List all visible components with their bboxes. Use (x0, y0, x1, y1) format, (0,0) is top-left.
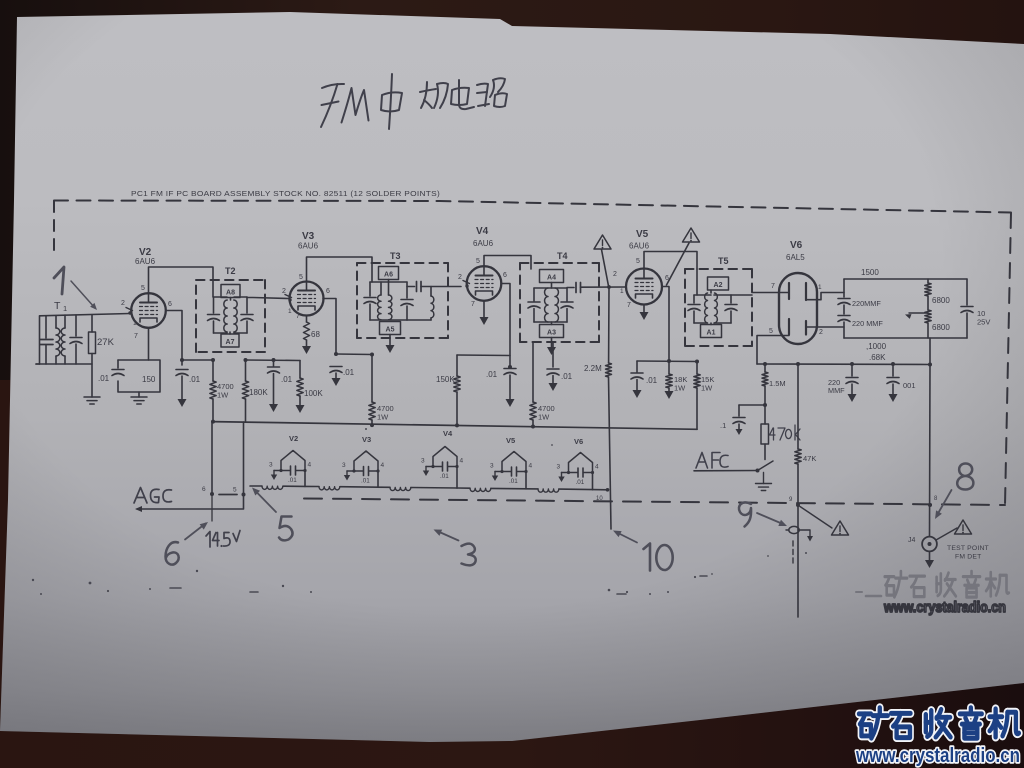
svg-text:150: 150 (142, 375, 156, 384)
svg-text:A5: A5 (386, 326, 395, 333)
svg-text:.68K: .68K (869, 353, 886, 362)
svg-text:V6: V6 (790, 240, 803, 251)
svg-text:220 MMF: 220 MMF (852, 319, 883, 328)
svg-text:1W: 1W (674, 384, 686, 393)
svg-text:V6: V6 (574, 437, 583, 446)
svg-text:V3: V3 (362, 435, 371, 444)
svg-text:TEST POINT: TEST POINT (947, 545, 989, 552)
svg-text:1: 1 (818, 284, 822, 291)
svg-text:1W: 1W (377, 413, 389, 422)
svg-text:1W: 1W (701, 384, 713, 393)
svg-text:3: 3 (342, 462, 346, 469)
svg-text:3: 3 (421, 458, 425, 465)
svg-text:6AU6: 6AU6 (629, 242, 650, 251)
svg-text:4: 4 (308, 462, 312, 469)
svg-text:2: 2 (121, 300, 125, 307)
svg-text:3: 3 (557, 464, 561, 471)
svg-text:.01: .01 (288, 477, 297, 484)
svg-text:www.crystalradio.cn: www.crystalradio.cn (883, 600, 1006, 616)
svg-text:6: 6 (326, 288, 330, 295)
svg-text:5: 5 (636, 258, 640, 265)
svg-text:180K: 180K (249, 388, 268, 397)
svg-text:PC1 FM IF PC BOARD ASSEMBLY: PC1 FM IF PC BOARD ASSEMBLY STOCK NO. 82… (131, 189, 440, 198)
svg-text:V5: V5 (636, 229, 649, 240)
svg-text:4: 4 (381, 462, 385, 469)
svg-text:V2: V2 (289, 434, 298, 443)
svg-text:100K: 100K (304, 389, 323, 398)
svg-text:.01: .01 (576, 479, 585, 486)
svg-text:5: 5 (233, 487, 237, 494)
svg-text:www.crystalradio.cn: www.crystalradio.cn (855, 745, 1020, 767)
svg-text:T3: T3 (390, 251, 401, 261)
svg-text:2: 2 (613, 271, 617, 278)
svg-text:5: 5 (299, 274, 303, 281)
svg-text:J4: J4 (908, 537, 916, 544)
svg-text:6800: 6800 (932, 296, 950, 305)
svg-text:7: 7 (296, 313, 300, 320)
svg-text:7: 7 (471, 301, 475, 308)
svg-text:1: 1 (288, 308, 292, 315)
svg-text:A4: A4 (547, 274, 556, 281)
svg-text:T2: T2 (225, 266, 236, 276)
svg-text:.01: .01 (281, 375, 293, 384)
svg-text:2.2M: 2.2M (584, 364, 602, 373)
svg-text:A3: A3 (547, 329, 556, 336)
svg-text:A1: A1 (707, 329, 716, 336)
svg-text:3: 3 (269, 462, 273, 469)
svg-text:27K: 27K (97, 337, 115, 348)
svg-text:1: 1 (620, 288, 624, 295)
svg-text:T: T (54, 300, 61, 312)
svg-text:5: 5 (141, 285, 145, 292)
svg-text:V4: V4 (443, 429, 453, 438)
svg-text:1: 1 (63, 304, 67, 313)
svg-text:,1000: ,1000 (866, 342, 887, 351)
svg-text:.01: .01 (361, 478, 370, 485)
svg-text:.01: .01 (486, 370, 498, 379)
svg-text:7: 7 (134, 333, 138, 340)
svg-text:47K: 47K (803, 454, 816, 463)
svg-text:T4: T4 (557, 251, 568, 261)
svg-text:.01: .01 (440, 473, 449, 480)
svg-text:6AU6: 6AU6 (135, 257, 156, 266)
svg-text:1500: 1500 (861, 268, 879, 277)
svg-text:25V: 25V (977, 318, 990, 327)
svg-text:A7: A7 (226, 339, 235, 346)
svg-text:6: 6 (168, 301, 172, 308)
svg-text:.01: .01 (343, 368, 355, 377)
svg-text:V4: V4 (476, 226, 489, 237)
svg-text:6AL5: 6AL5 (786, 253, 805, 262)
svg-text:7: 7 (627, 302, 631, 309)
svg-text:220MMF: 220MMF (852, 299, 881, 308)
svg-text:3: 3 (490, 463, 494, 470)
svg-text:7: 7 (771, 283, 775, 290)
svg-text:.01: .01 (509, 478, 518, 485)
svg-text:150K: 150K (436, 375, 455, 384)
svg-text:.01: .01 (646, 376, 658, 385)
svg-text:.1: .1 (720, 421, 726, 430)
svg-text:1W: 1W (217, 391, 229, 400)
svg-text:5: 5 (476, 258, 480, 265)
svg-text:6: 6 (665, 275, 669, 282)
svg-text:T5: T5 (718, 256, 729, 266)
svg-text:1: 1 (133, 320, 137, 327)
svg-text:FM DET: FM DET (955, 554, 982, 561)
svg-text:6800: 6800 (932, 323, 950, 332)
svg-text:1.5M: 1.5M (769, 379, 786, 388)
svg-text:.01: .01 (561, 372, 573, 381)
svg-text:4: 4 (460, 458, 464, 465)
svg-text:6AU6: 6AU6 (473, 239, 494, 248)
svg-text:4: 4 (595, 464, 599, 471)
svg-text:V5: V5 (506, 436, 515, 445)
svg-text:A8: A8 (226, 289, 235, 296)
svg-text:001: 001 (903, 381, 916, 390)
svg-text:68: 68 (311, 330, 320, 339)
svg-text:6AU6: 6AU6 (298, 242, 319, 251)
svg-text:2: 2 (819, 329, 823, 336)
svg-text:5: 5 (769, 328, 773, 335)
svg-text:6: 6 (503, 272, 507, 279)
svg-text:2: 2 (458, 274, 462, 281)
svg-text:A2: A2 (714, 282, 723, 289)
svg-text:6: 6 (202, 486, 206, 493)
svg-text:1W: 1W (538, 413, 550, 422)
svg-text:.01: .01 (189, 375, 201, 384)
svg-text:.01: .01 (98, 374, 110, 383)
svg-text:10: 10 (596, 496, 603, 502)
svg-text:V3: V3 (302, 231, 315, 242)
svg-text:4: 4 (529, 463, 533, 470)
svg-text:A6: A6 (384, 271, 393, 278)
svg-text:MMF: MMF (828, 386, 845, 395)
